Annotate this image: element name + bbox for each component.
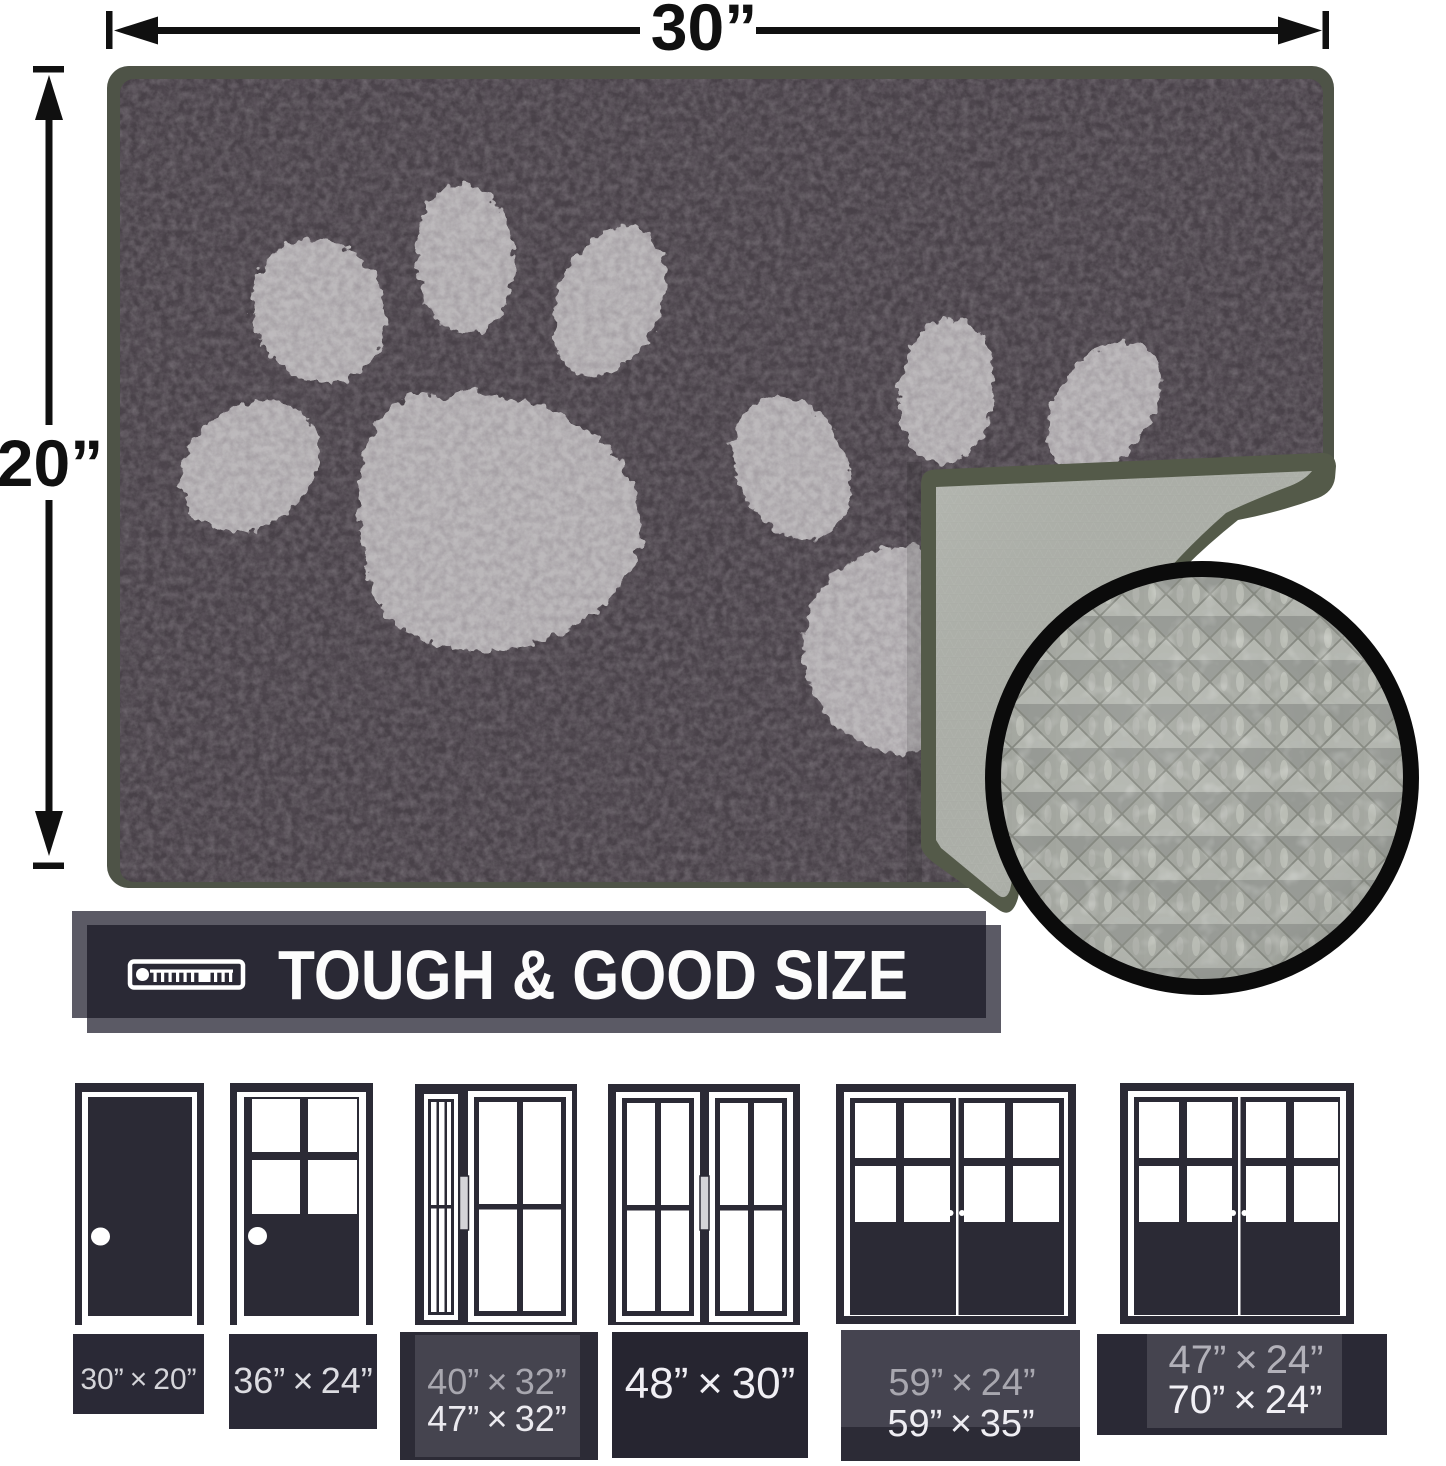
svg-text:TOUGH & GOOD SIZE: TOUGH & GOOD SIZE	[278, 936, 908, 1014]
svg-text:47” × 24”: 47” × 24”	[1169, 1338, 1324, 1382]
svg-text:20”: 20”	[0, 426, 103, 500]
svg-text:48” × 30”: 48” × 30”	[625, 1359, 796, 1408]
svg-text:40” × 32”: 40” × 32”	[427, 1361, 567, 1402]
svg-text:30” × 20”: 30” × 20”	[80, 1363, 196, 1396]
svg-text:36” × 24”: 36” × 24”	[233, 1360, 373, 1401]
svg-text:59” × 35”: 59” × 35”	[887, 1403, 1034, 1445]
svg-text:70” × 24”: 70” × 24”	[1168, 1378, 1323, 1422]
svg-text:47” × 32”: 47” × 32”	[427, 1398, 567, 1439]
svg-text:59” × 24”: 59” × 24”	[888, 1362, 1035, 1404]
svg-text:30”: 30”	[651, 0, 757, 64]
